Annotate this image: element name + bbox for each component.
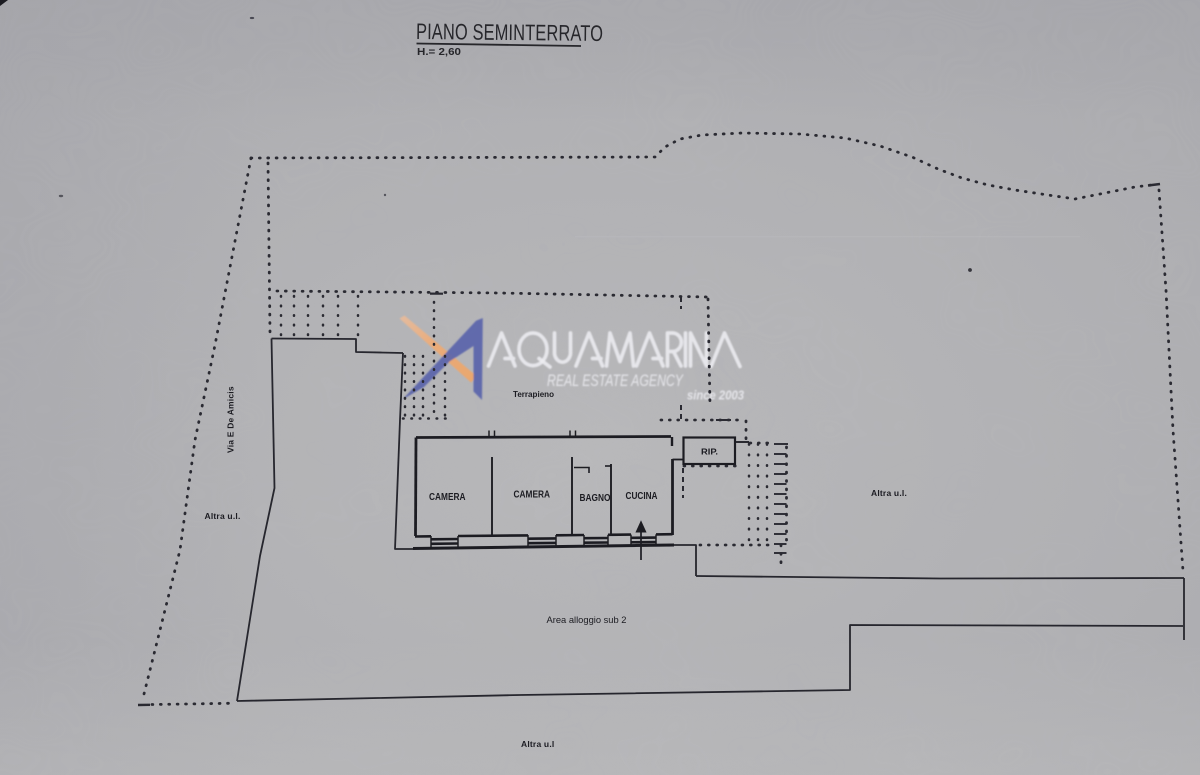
svg-text:BAGNO: BAGNO [580, 493, 611, 504]
svg-text:Via E De Amicis: Via E De Amicis [226, 386, 236, 453]
svg-text:REAL ESTATE AGENCY: REAL ESTATE AGENCY [547, 371, 684, 390]
svg-text:CUCINA: CUCINA [626, 491, 658, 502]
svg-text:since 2003: since 2003 [687, 389, 744, 403]
svg-text:Altra u.l.: Altra u.l. [205, 511, 241, 521]
svg-text:CAMERA: CAMERA [429, 492, 466, 503]
svg-text:H.= 2,60: H.= 2,60 [417, 46, 461, 58]
svg-text:RIP.: RIP. [701, 447, 718, 457]
svg-text:CAMERA: CAMERA [514, 490, 551, 501]
svg-text:Altra u.l: Altra u.l [521, 739, 554, 749]
svg-text:Terrapieno: Terrapieno [513, 389, 554, 399]
svg-text:Area alloggio sub 2: Area alloggio sub 2 [547, 615, 627, 626]
svg-text:Altra u.l.: Altra u.l. [871, 488, 907, 498]
svg-text:PIANO SEMINTERRATO: PIANO SEMINTERRATO [416, 19, 603, 46]
